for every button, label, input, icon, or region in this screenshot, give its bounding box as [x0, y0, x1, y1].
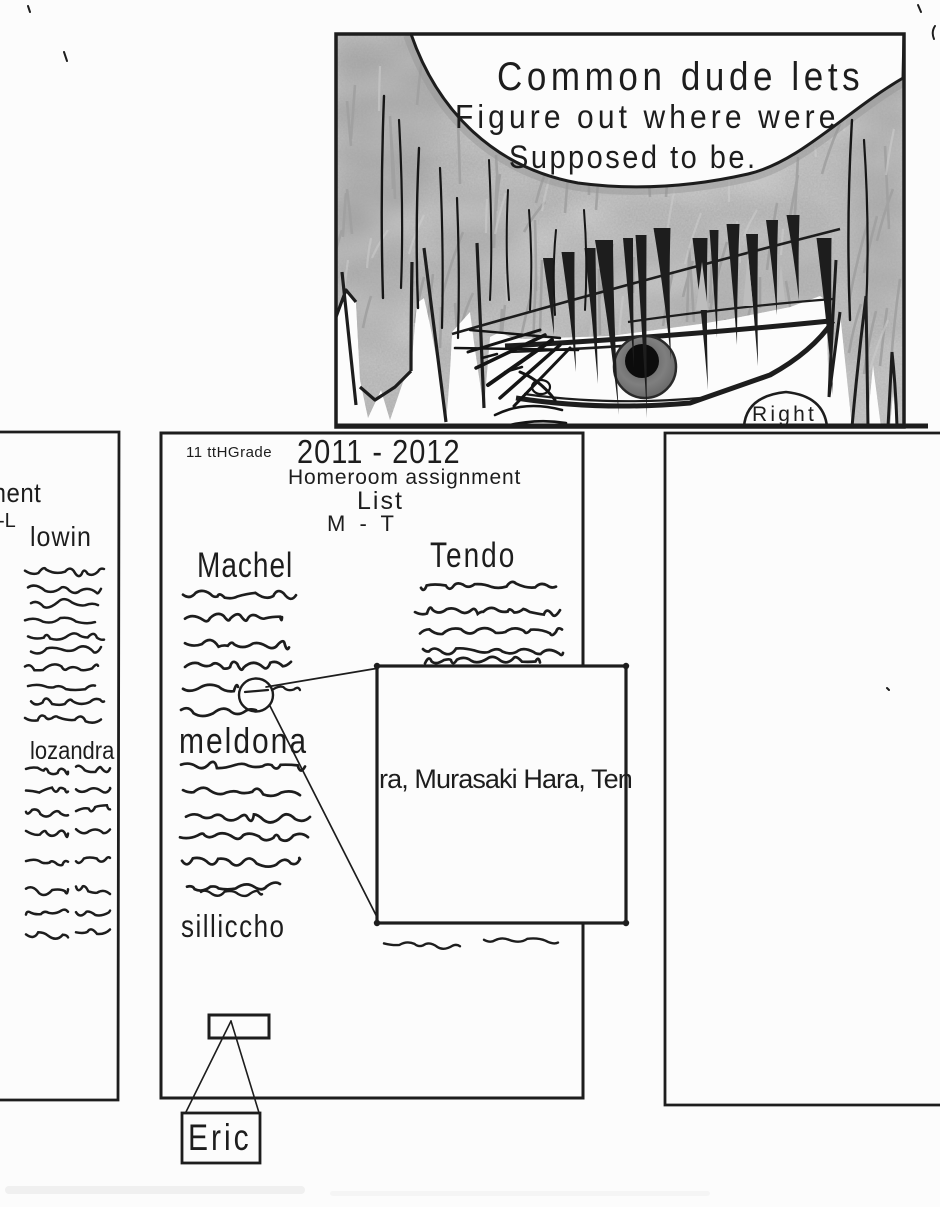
svg-text:Common dude lets: Common dude lets	[497, 54, 864, 99]
svg-text:Right: Right	[752, 403, 817, 426]
svg-text:-L: -L	[0, 510, 16, 532]
svg-text:Eric: Eric	[188, 1117, 252, 1159]
svg-text:ra, Murasaki Hara, Ten: ra, Murasaki Hara, Ten	[379, 764, 632, 794]
svg-text:Homeroom assignment: Homeroom assignment	[288, 466, 521, 489]
svg-text:2011 - 2012: 2011 - 2012	[297, 433, 461, 470]
svg-text:silliccho: silliccho	[181, 910, 285, 945]
svg-text:11 ttHGrade: 11 ttHGrade	[186, 444, 272, 461]
svg-text:lowin: lowin	[30, 521, 92, 553]
svg-text:Figure out where were: Figure out where were	[455, 97, 840, 135]
svg-text:M - T: M - T	[327, 511, 398, 536]
svg-text:lozandra: lozandra	[30, 738, 115, 766]
svg-text:ment: ment	[0, 479, 41, 508]
svg-text:Tendo: Tendo	[430, 535, 516, 575]
svg-text:Machel: Machel	[197, 545, 293, 585]
svg-text:Supposed to be.: Supposed to be.	[509, 138, 758, 175]
